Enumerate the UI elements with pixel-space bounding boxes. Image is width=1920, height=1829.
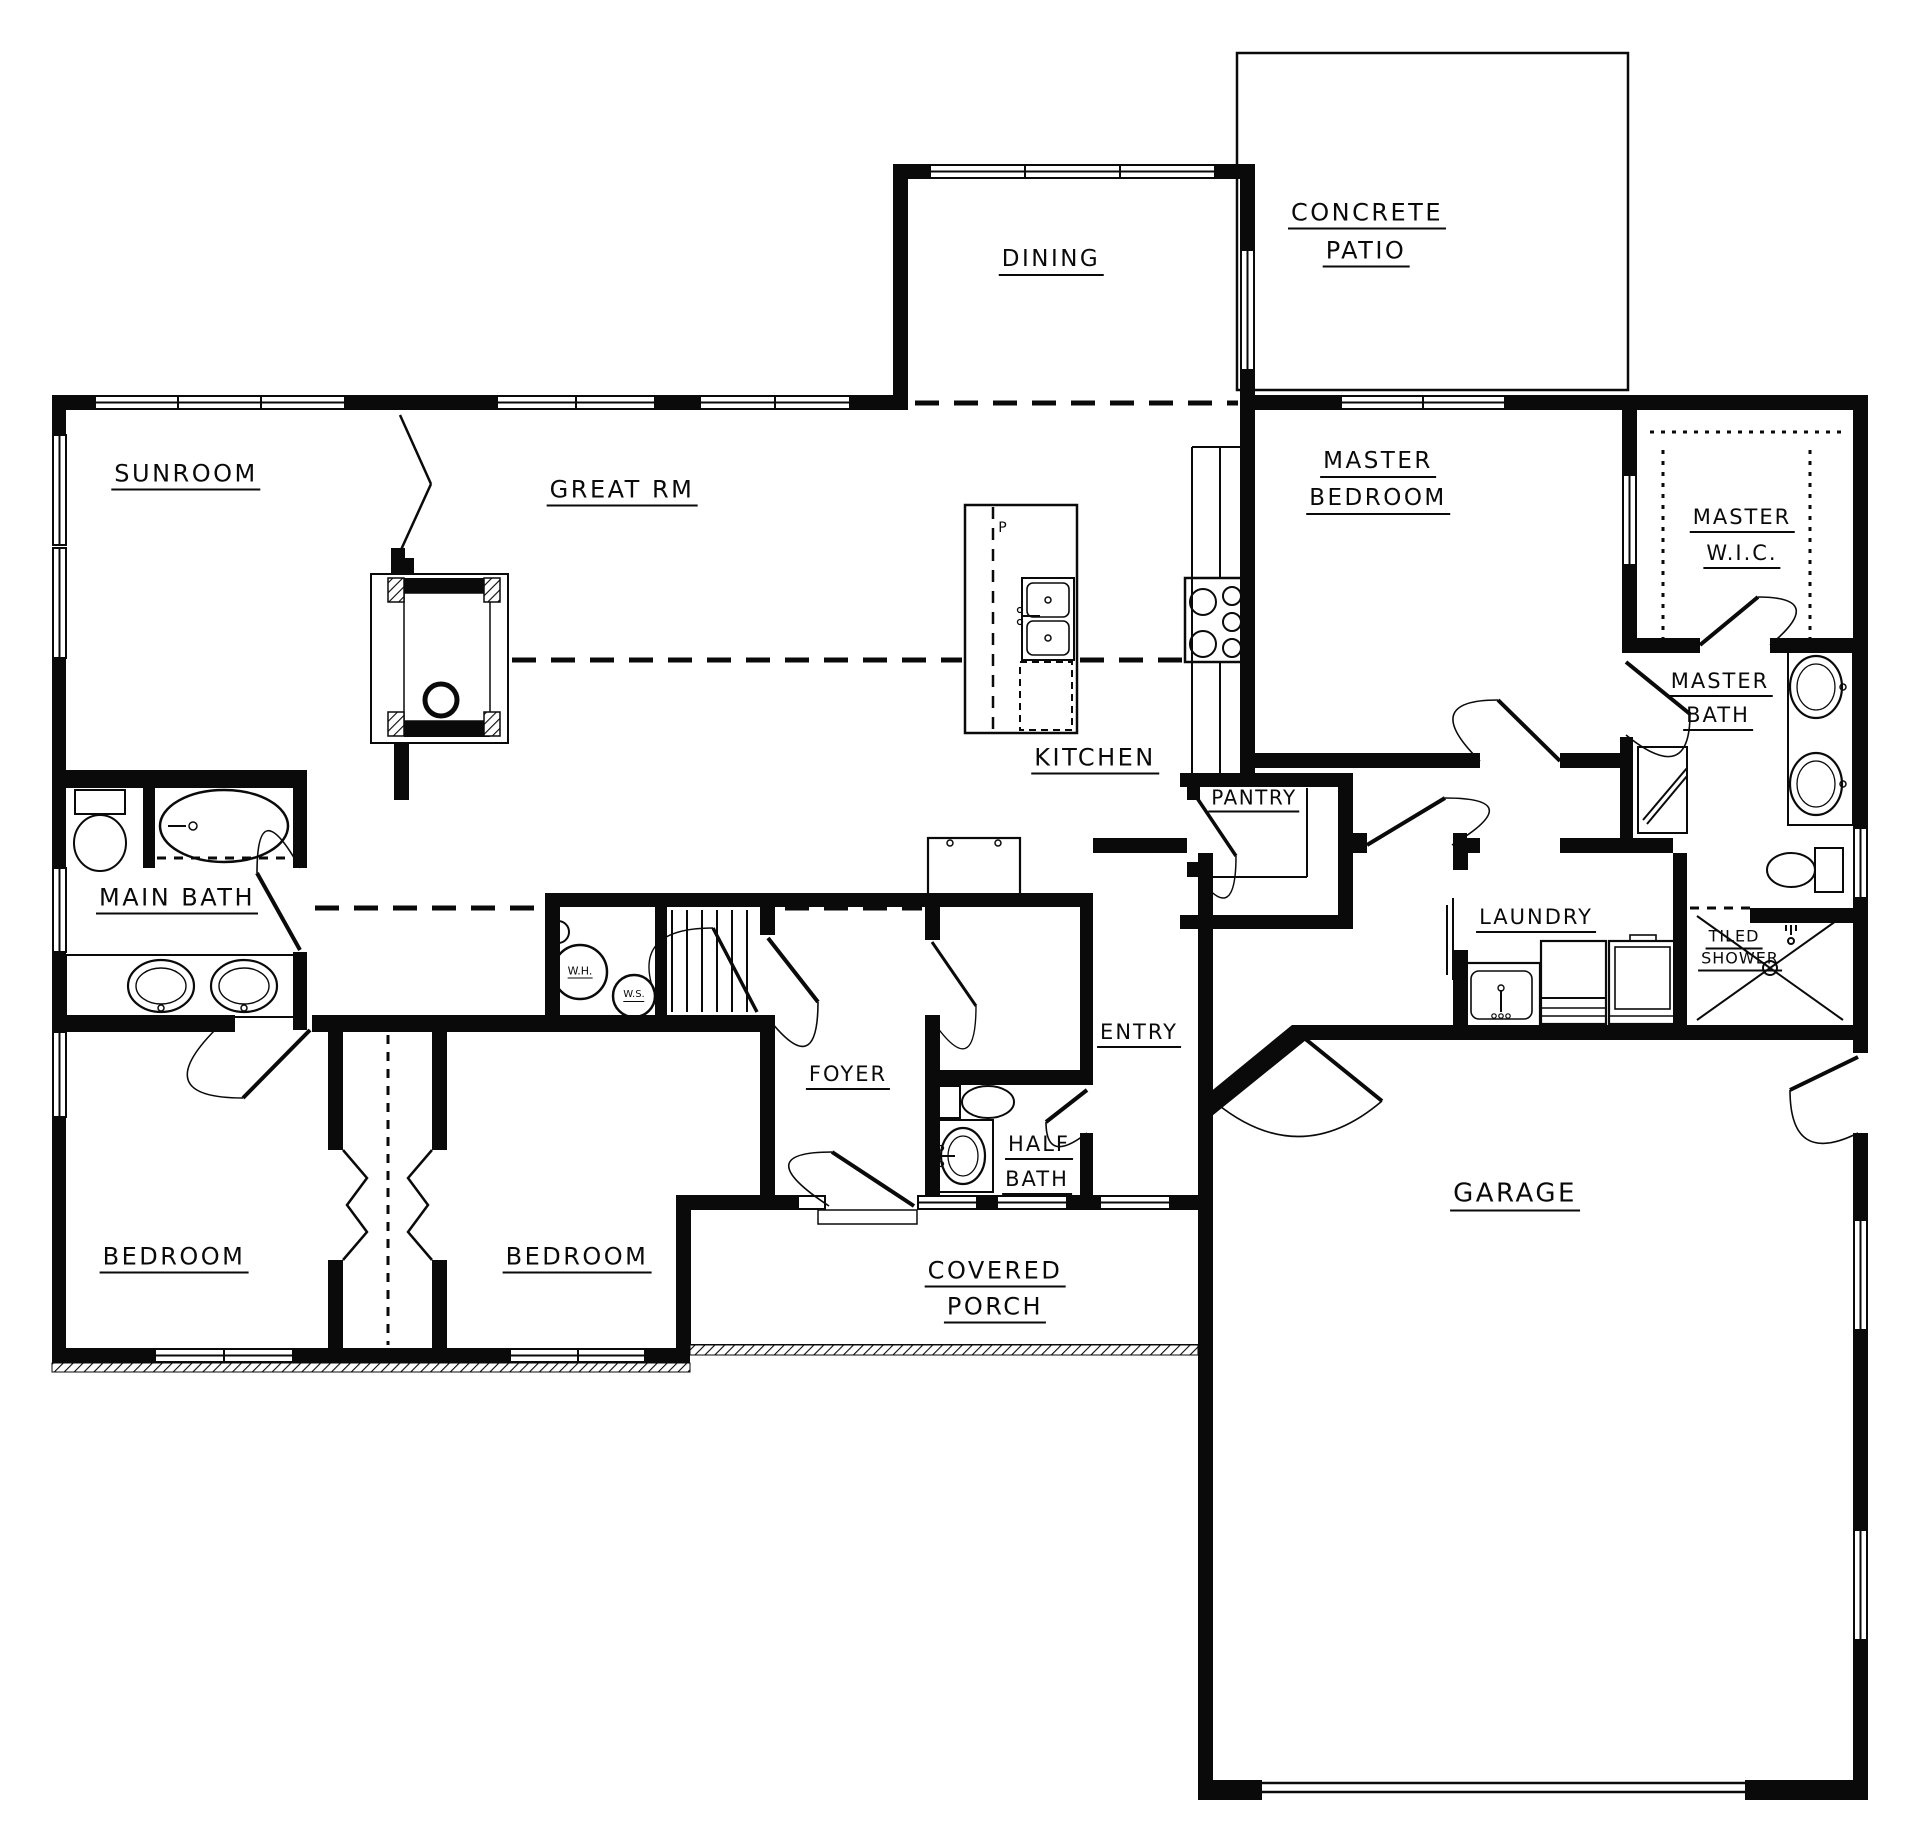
double-vanity-icon <box>66 955 301 1017</box>
utility-closet <box>547 921 655 1017</box>
room-label-pantry: PANTRY <box>1208 788 1299 813</box>
room-label-master-bath-2: BATH <box>1683 705 1753 731</box>
range-icon <box>1185 578 1242 662</box>
room-label-foyer: FOYER <box>806 1064 890 1090</box>
room-label-master-bath-1: MASTER <box>1668 671 1773 697</box>
dining-west-wall <box>893 164 908 410</box>
room-label-sunroom: SUNROOM <box>111 462 260 491</box>
dryer-icon <box>1609 935 1676 1024</box>
room-label-concrete-patio-2: PATIO <box>1323 239 1410 268</box>
closet-bifold-left-icon <box>343 1150 367 1260</box>
garage-door-icon <box>1262 1783 1745 1792</box>
room-label-tiled-shower-2: SHOWER <box>1698 951 1782 972</box>
toilet-icon <box>938 1086 1014 1118</box>
kitchen-island <box>965 505 1077 733</box>
washer-icon <box>1541 941 1606 1024</box>
wic-door-icon <box>1700 597 1796 645</box>
ceiling-break-lines <box>315 403 1238 908</box>
label-island-p: P <box>998 521 1007 535</box>
room-label-covered-porch-2: PORCH <box>944 1295 1046 1324</box>
garage-angled-wall <box>1198 1025 1306 1116</box>
floor-plan: SUNROOM GREAT RM DINING CONCRETE PATIO M… <box>0 0 1920 1829</box>
floor-plan-drawing <box>0 0 1920 1829</box>
room-label-bedroom-right: BEDROOM <box>503 1245 652 1274</box>
kitchen-counter <box>1192 447 1240 773</box>
sunroom-door-icon <box>400 415 431 552</box>
porch-and-hatching <box>52 1210 1198 1372</box>
tub-icon <box>160 790 288 862</box>
garage-west-wall <box>1198 853 1213 1800</box>
room-label-master-bedroom-1: MASTER <box>1320 450 1436 478</box>
bedroom-right-door-icon <box>768 938 818 1046</box>
utility-sink-icon <box>1463 963 1540 1027</box>
sink-icon <box>933 1120 993 1192</box>
room-label-dining: DINING <box>999 248 1104 276</box>
fireplace-icon <box>371 574 508 743</box>
plumbing-lines <box>1447 898 1453 980</box>
room-label-half-bath-1: HALF <box>1005 1134 1073 1160</box>
room-label-great-room: GREAT RM <box>547 478 698 507</box>
linen-door-icon <box>1643 768 1687 824</box>
room-label-laundry: LAUNDRY <box>1476 907 1596 933</box>
front-step <box>818 1210 917 1224</box>
room-label-garage: GARAGE <box>1450 1181 1580 1212</box>
room-label-concrete-patio-1: CONCRETE <box>1288 201 1446 230</box>
bedroom-left-door-icon <box>187 1030 310 1098</box>
toilet-icon <box>1767 848 1843 892</box>
entry-cabinet-icon <box>928 838 1020 895</box>
label-water-heater: W.H. <box>568 966 593 979</box>
room-label-entry: ENTRY <box>1097 1022 1181 1048</box>
toilet-icon <box>74 790 126 871</box>
double-vanity-icon <box>1788 650 1853 825</box>
island-sink-icon <box>1018 578 1075 660</box>
hall-door-icon <box>1367 798 1489 845</box>
master-bedroom-door-icon <box>1453 700 1560 761</box>
kitchen-fixtures <box>965 447 1242 773</box>
room-label-master-wic-1: MASTER <box>1690 507 1795 533</box>
closet-bifold-right-icon <box>408 1150 432 1260</box>
linen-closet <box>1638 747 1687 833</box>
stairs-icon <box>672 910 747 1012</box>
room-label-master-bedroom-2: BEDROOM <box>1306 487 1450 515</box>
room-label-covered-porch-1: COVERED <box>925 1259 1066 1288</box>
room-label-bedroom-left: BEDROOM <box>100 1245 249 1274</box>
room-label-main-bath: MAIN BATH <box>96 886 258 915</box>
room-label-tiled-shower-1: TILED <box>1706 929 1763 950</box>
room-label-kitchen: KITCHEN <box>1031 746 1159 775</box>
room-label-half-bath-2: BATH <box>1002 1169 1072 1195</box>
label-water-softener: W.S. <box>623 990 644 1002</box>
room-label-master-wic-2: W.I.C. <box>1703 543 1780 569</box>
garage-service-door-icon <box>1790 1057 1858 1143</box>
dishwasher-icon <box>1020 662 1072 730</box>
